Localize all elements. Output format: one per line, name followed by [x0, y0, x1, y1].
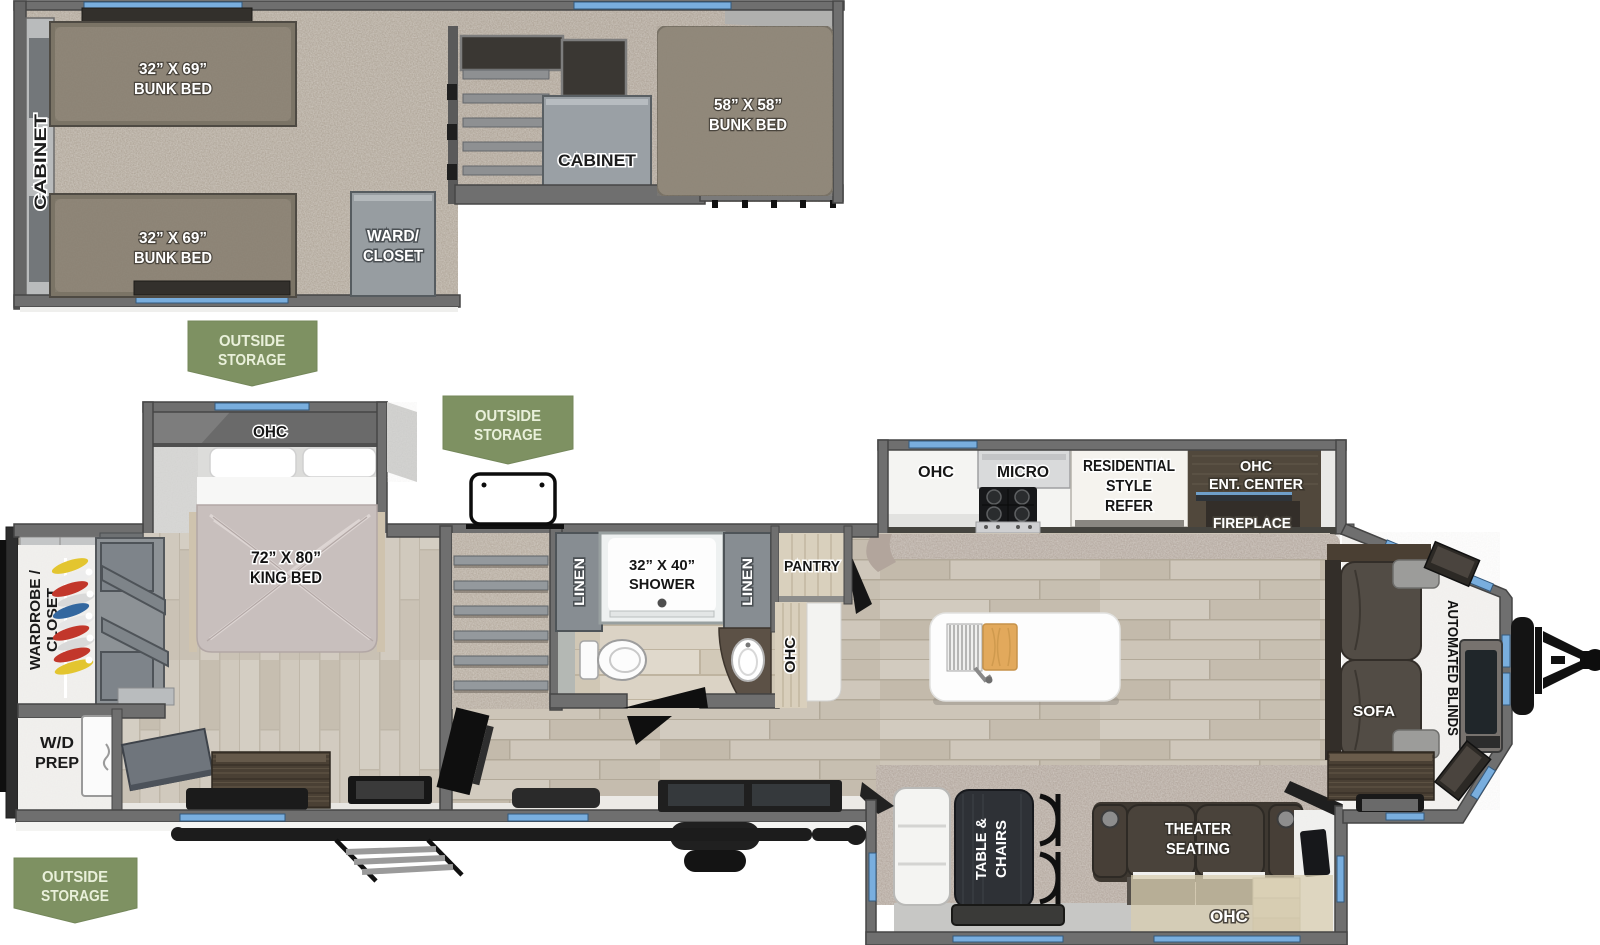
svg-text:WARD/: WARD/	[367, 228, 420, 245]
svg-text:BUNK BED: BUNK BED	[134, 250, 212, 267]
svg-text:WARDROBE /: WARDROBE /	[27, 569, 44, 670]
svg-text:KING BED: KING BED	[250, 568, 322, 587]
svg-text:W/D: W/D	[40, 735, 74, 752]
svg-text:LINEN: LINEN	[739, 558, 755, 606]
svg-text:THEATER: THEATER	[1165, 821, 1231, 838]
svg-text:STYLE: STYLE	[1106, 478, 1152, 495]
svg-text:58” X 58”: 58” X 58”	[714, 97, 782, 114]
svg-text:OHC: OHC	[1210, 907, 1248, 926]
svg-text:OUTSIDE: OUTSIDE	[475, 408, 541, 425]
svg-text:REFER: REFER	[1105, 498, 1153, 515]
svg-text:CLOSET: CLOSET	[363, 248, 423, 265]
svg-text:AUTOMATED BLINDS: AUTOMATED BLINDS	[1444, 600, 1460, 736]
svg-text:32” X 69”: 32” X 69”	[139, 61, 207, 78]
svg-text:ENT. CENTER: ENT. CENTER	[1209, 477, 1304, 493]
svg-text:STORAGE: STORAGE	[41, 888, 109, 905]
svg-text:STORAGE: STORAGE	[218, 352, 286, 369]
svg-text:OHC: OHC	[253, 424, 287, 441]
svg-text:32” X 40”: 32” X 40”	[629, 557, 695, 574]
svg-text:CLOSET: CLOSET	[44, 588, 61, 652]
svg-text:PREP: PREP	[35, 755, 79, 772]
svg-text:LINEN: LINEN	[571, 558, 587, 606]
svg-text:FIREPLACE: FIREPLACE	[1213, 515, 1291, 532]
svg-text:SEATING: SEATING	[1166, 841, 1230, 858]
svg-text:RESIDENTIAL: RESIDENTIAL	[1083, 458, 1175, 475]
svg-text:BUNK BED: BUNK BED	[709, 117, 787, 134]
svg-text:OHC: OHC	[918, 464, 954, 481]
svg-text:CABINET: CABINET	[31, 113, 50, 210]
svg-text:MICRO: MICRO	[997, 464, 1049, 481]
svg-text:SHOWER: SHOWER	[629, 576, 695, 593]
svg-text:CHAIRS: CHAIRS	[993, 820, 1010, 878]
svg-text:BUNK BED: BUNK BED	[134, 81, 212, 98]
svg-text:CABINET: CABINET	[558, 151, 637, 170]
svg-text:OHC: OHC	[1240, 458, 1272, 475]
svg-text:STORAGE: STORAGE	[474, 427, 542, 444]
svg-text:OUTSIDE: OUTSIDE	[219, 333, 285, 350]
svg-text:OHC: OHC	[782, 637, 799, 673]
svg-text:SOFA: SOFA	[1353, 703, 1395, 720]
svg-text:PANTRY: PANTRY	[784, 558, 840, 575]
svg-text:OUTSIDE: OUTSIDE	[42, 869, 108, 886]
svg-text:32” X 69”: 32” X 69”	[139, 230, 207, 247]
svg-text:72” X 80”: 72” X 80”	[251, 548, 321, 567]
svg-text:TABLE &: TABLE &	[973, 818, 990, 880]
